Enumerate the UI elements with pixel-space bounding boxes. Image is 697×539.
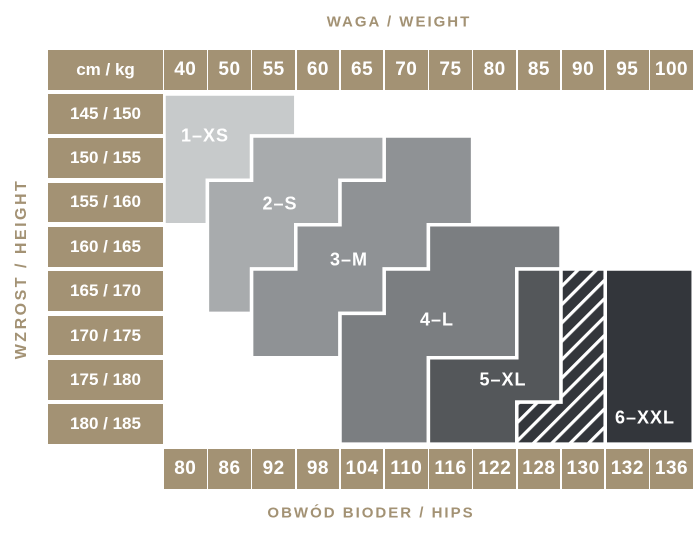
hips-cell: 80: [164, 449, 207, 489]
hips-cell: 110: [385, 449, 428, 489]
size-region-6-xxl: [605, 269, 693, 444]
height-cell: 155 / 160: [48, 183, 163, 223]
height-cell: 170 / 175: [48, 316, 163, 356]
weight-cell: 75: [429, 50, 472, 90]
weight-cell: 60: [297, 50, 340, 90]
hips-cell: 130: [562, 449, 605, 489]
height-cell: 180 / 185: [48, 404, 163, 444]
height-cell: 150 / 155: [48, 138, 163, 178]
height-cell: 145 / 150: [48, 94, 163, 134]
size-chart: WAGA / WEIGHT WZROST / HEIGHT OBWÓD BIOD…: [0, 0, 697, 539]
weight-cell: 80: [473, 50, 516, 90]
hips-cell: 122: [473, 449, 516, 489]
hips-cell: 104: [341, 449, 384, 489]
height-cell: 175 / 180: [48, 360, 163, 400]
hips-cell: 98: [297, 449, 340, 489]
hips-cell: 92: [252, 449, 295, 489]
weight-cell: 50: [208, 50, 251, 90]
weight-cell: 95: [606, 50, 649, 90]
height-cell: 160 / 165: [48, 227, 163, 267]
hips-cell: 116: [429, 449, 472, 489]
hips-cell: 132: [606, 449, 649, 489]
hips-cell: 128: [518, 449, 561, 489]
hips-cell: 86: [208, 449, 251, 489]
weight-cell: 70: [385, 50, 428, 90]
weight-cell: 90: [562, 50, 605, 90]
hips-cell: 136: [650, 449, 693, 489]
weight-cell: 40: [164, 50, 207, 90]
height-cell: 165 / 170: [48, 271, 163, 311]
weight-cell: 100: [650, 50, 693, 90]
weight-cell: 85: [518, 50, 561, 90]
weight-cell: 55: [252, 50, 295, 90]
weight-cell: 65: [341, 50, 384, 90]
